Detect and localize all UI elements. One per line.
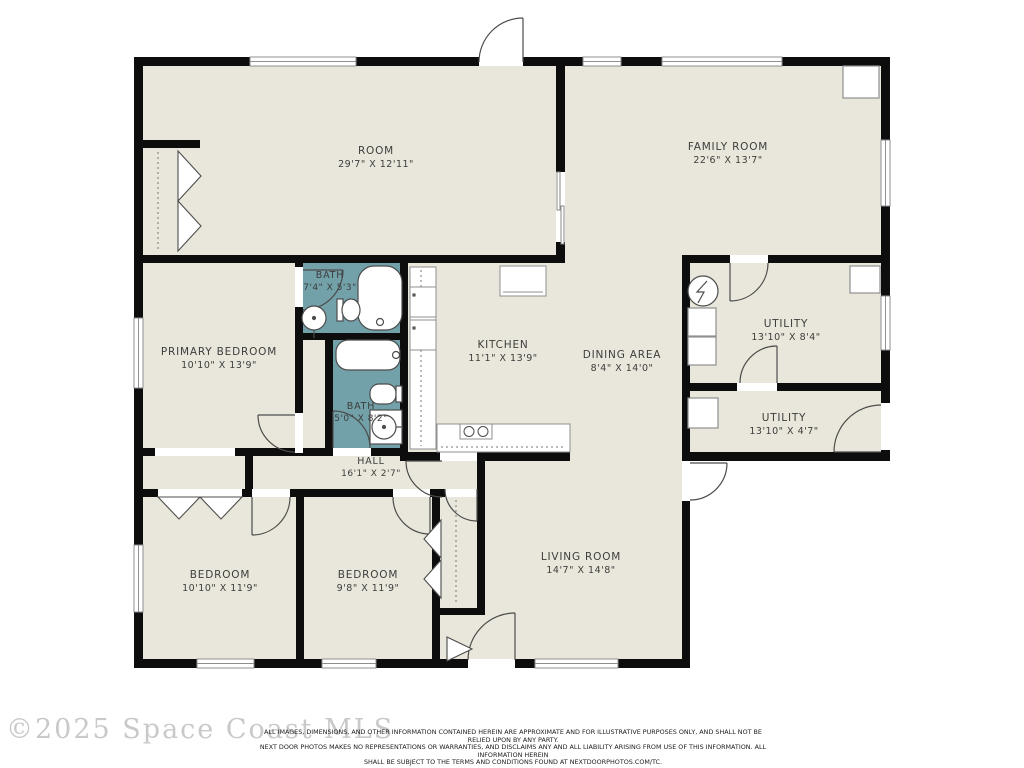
room-label-hall: HALL16'1" X 2'7" [341, 456, 401, 480]
room-label-room: ROOM29'7" X 12'11" [338, 144, 414, 171]
disclaimer-line-1: ALL IMAGES, DIMENSIONS, AND OTHER INFORM… [255, 729, 771, 744]
dryer-icon [688, 337, 716, 365]
wall-oven-icon [410, 287, 436, 317]
room-label-bath1: BATH7'4" X 5'3" [303, 270, 357, 294]
room-label-utility2: UTILITY13'10" X 4'7" [749, 411, 818, 438]
disclaimer-line-3: SHALL BE SUBJECT TO THE TERMS AND CONDIT… [255, 759, 771, 767]
water-heater-icon [688, 276, 718, 306]
wall-oven-icon [410, 320, 436, 350]
shelf [850, 266, 880, 293]
room-label-bath2: BATH5'0" X 8'2" [334, 401, 388, 425]
room-label-bedroom1: BEDROOM10'10" X 11'9" [182, 568, 258, 595]
bathtub-icon [336, 340, 400, 370]
floor-plan-drawing [0, 0, 1024, 768]
room-label-utility1: UTILITY13'10" X 8'4" [751, 317, 820, 344]
room-label-primary-bedroom: PRIMARY BEDROOM10'10" X 13'9" [161, 345, 277, 372]
appliance [688, 398, 718, 428]
room-label-dining-area: DINING AREA8'4" X 14'0" [583, 348, 662, 375]
washer-icon [688, 308, 716, 336]
room-label-bedroom2: BEDROOM9'8" X 11'9" [337, 568, 400, 595]
built-in-cabinet [843, 66, 879, 98]
floor-plan-page: ROOM29'7" X 12'11" FAMILY ROOM22'6" X 13… [0, 0, 1024, 768]
disclaimer-text: ALL IMAGES, DIMENSIONS, AND OTHER INFORM… [255, 729, 771, 767]
room-label-kitchen: KITCHEN11'1" X 13'9" [468, 338, 537, 365]
room-label-family-room: FAMILY ROOM22'6" X 13'7" [688, 140, 768, 167]
room-label-living-room: LIVING ROOM14'7" X 14'8" [541, 550, 621, 577]
kitchen-counter [437, 424, 570, 452]
disclaimer-line-2: NEXT DOOR PHOTOS MAKES NO REPRESENTATION… [255, 744, 771, 759]
